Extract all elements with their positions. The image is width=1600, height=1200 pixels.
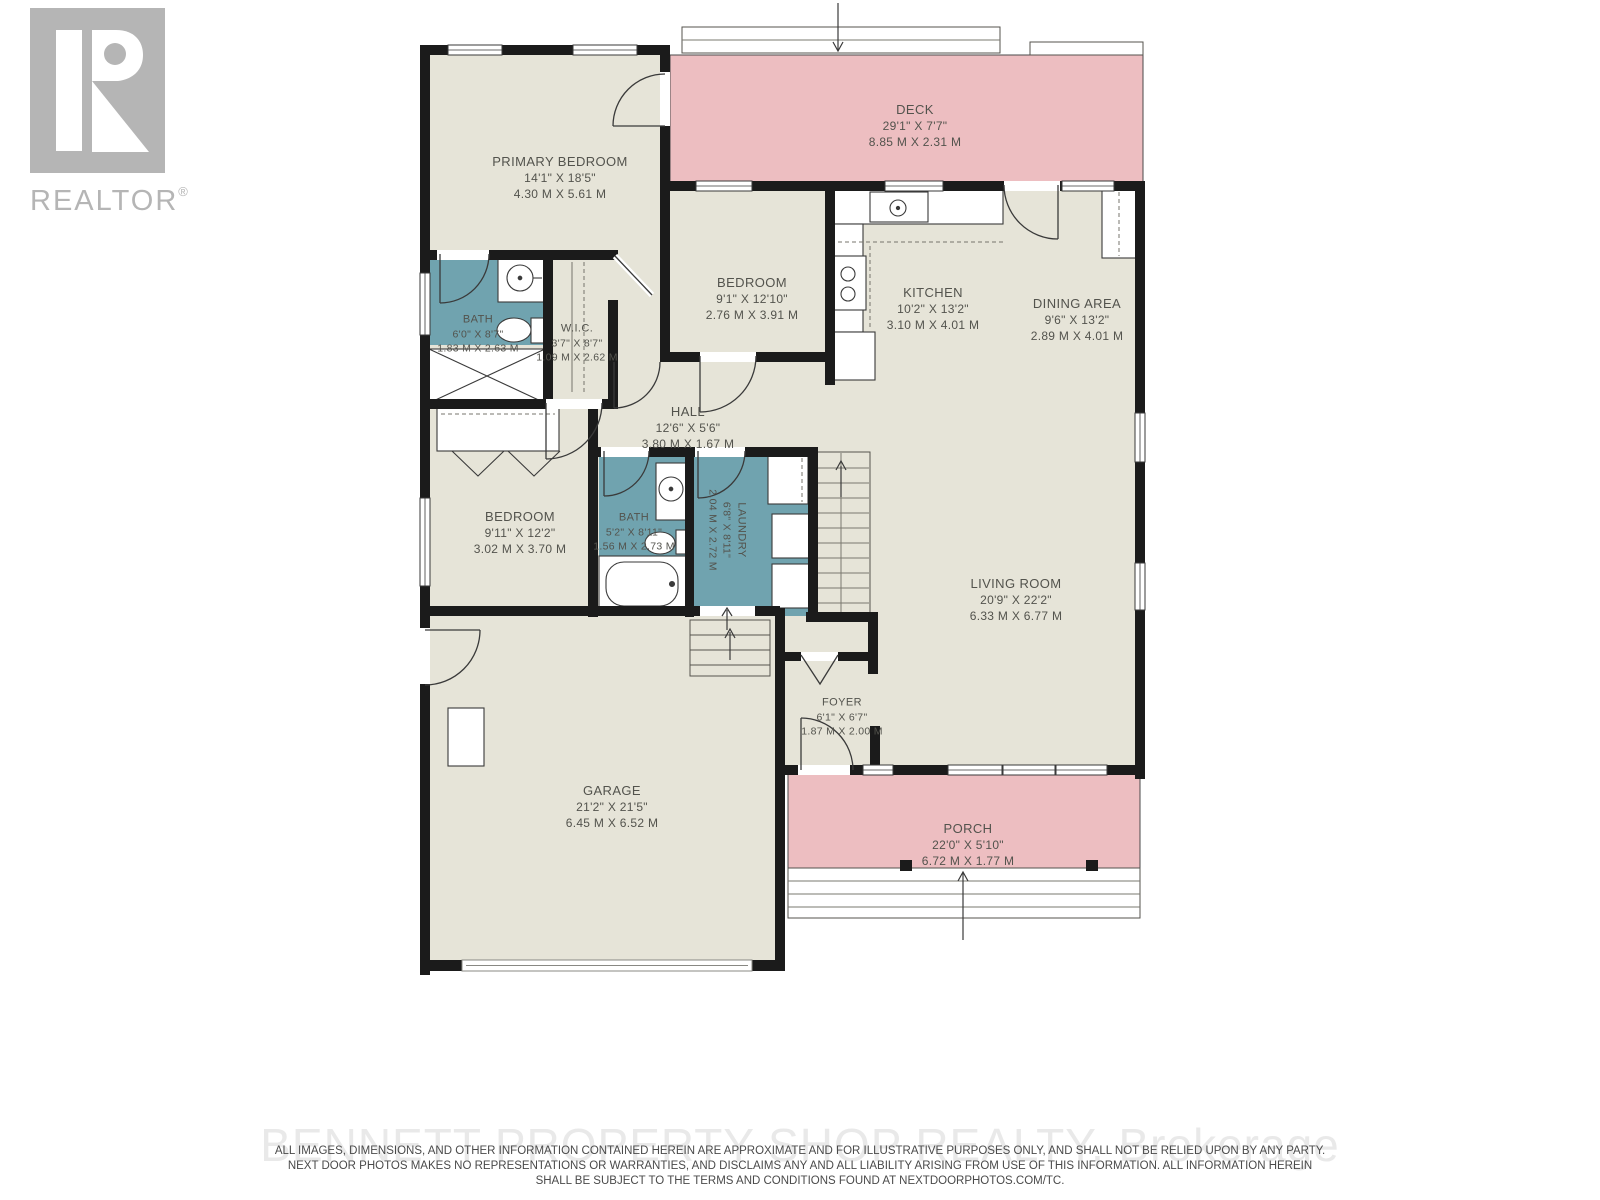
disclaimer-text: ALL IMAGES, DIMENSIONS, AND OTHER INFORM… — [0, 1144, 1600, 1189]
garage-utility-box — [448, 708, 484, 766]
room-label-dining-area: DINING AREA 9'6" X 13'2" 2.89 M X 4.01 M — [1031, 295, 1124, 345]
disclaimer-line: ALL IMAGES, DIMENSIONS, AND OTHER INFORM… — [0, 1144, 1600, 1159]
room-label-primary-bedroom: PRIMARY BEDROOM 14'1" X 18'5" 4.30 M X 5… — [492, 153, 628, 203]
tub-faucet-icon — [670, 582, 675, 587]
deck-side-step — [1030, 42, 1143, 55]
disclaimer-line: NEXT DOOR PHOTOS MAKES NO REPRESENTATION… — [0, 1159, 1600, 1174]
floorplan-drawing — [0, 0, 1600, 1200]
room-label-wic: W.I.C. 3'7" X 8'7" 1.09 M X 2.62 M — [536, 322, 618, 365]
room-label-foyer: FOYER 6'1" X 6'7" 1.87 M X 2.00 M — [801, 696, 883, 739]
stove-icon — [832, 256, 866, 310]
bathtub-icon — [606, 562, 678, 606]
dryer-icon — [772, 564, 810, 608]
room-label-bedroom-2: BEDROOM 9'1" X 12'10" 2.76 M X 3.91 M — [706, 274, 799, 324]
disclaimer-line: SHALL BE SUBJECT TO THE TERMS AND CONDIT… — [0, 1174, 1600, 1189]
room-label-laundry: LAUNDRY 6'8" X 8'11" 2.04 M X 2.72 M — [706, 489, 749, 571]
washer-icon — [772, 514, 810, 558]
room-label-bath-main: BATH 5'2" X 8'11" 1.56 M X 2.73 M — [593, 511, 675, 554]
room-label-garage: GARAGE 21'2" X 21'5" 6.45 M X 6.52 M — [566, 782, 659, 832]
porch-post — [1086, 860, 1098, 871]
realtor-logo: REALTOR® — [30, 8, 230, 218]
porch-post — [900, 860, 912, 871]
floorplan-canvas: BENNETT PROPERTY SHOP REALTY, Brokerage … — [0, 0, 1600, 1200]
porch-steps — [788, 868, 1140, 918]
kitchen-counter-end — [833, 332, 875, 380]
realtor-wordmark: REALTOR® — [30, 184, 230, 218]
room-label-deck: DECK 29'1" X 7'7" 8.85 M X 2.31 M — [869, 101, 962, 151]
room-label-living-room: LIVING ROOM 20'9" X 22'2" 6.33 M X 6.77 … — [970, 575, 1063, 625]
realtor-r-icon — [30, 8, 165, 173]
room-label-porch: PORCH 22'0" X 5'10" 6.72 M X 1.77 M — [922, 820, 1015, 870]
room-label-bedroom-3: BEDROOM 9'11" X 12'2" 3.02 M X 3.70 M — [474, 508, 567, 558]
room-label-bath-primary: BATH 6'0" X 8'7" 1.83 M X 2.63 M — [437, 313, 519, 356]
room-label-hall: HALL 12'6" X 5'6" 3.80 M X 1.67 M — [642, 403, 735, 453]
room-label-kitchen: KITCHEN 10'2" X 13'2" 3.10 M X 4.01 M — [887, 284, 980, 334]
